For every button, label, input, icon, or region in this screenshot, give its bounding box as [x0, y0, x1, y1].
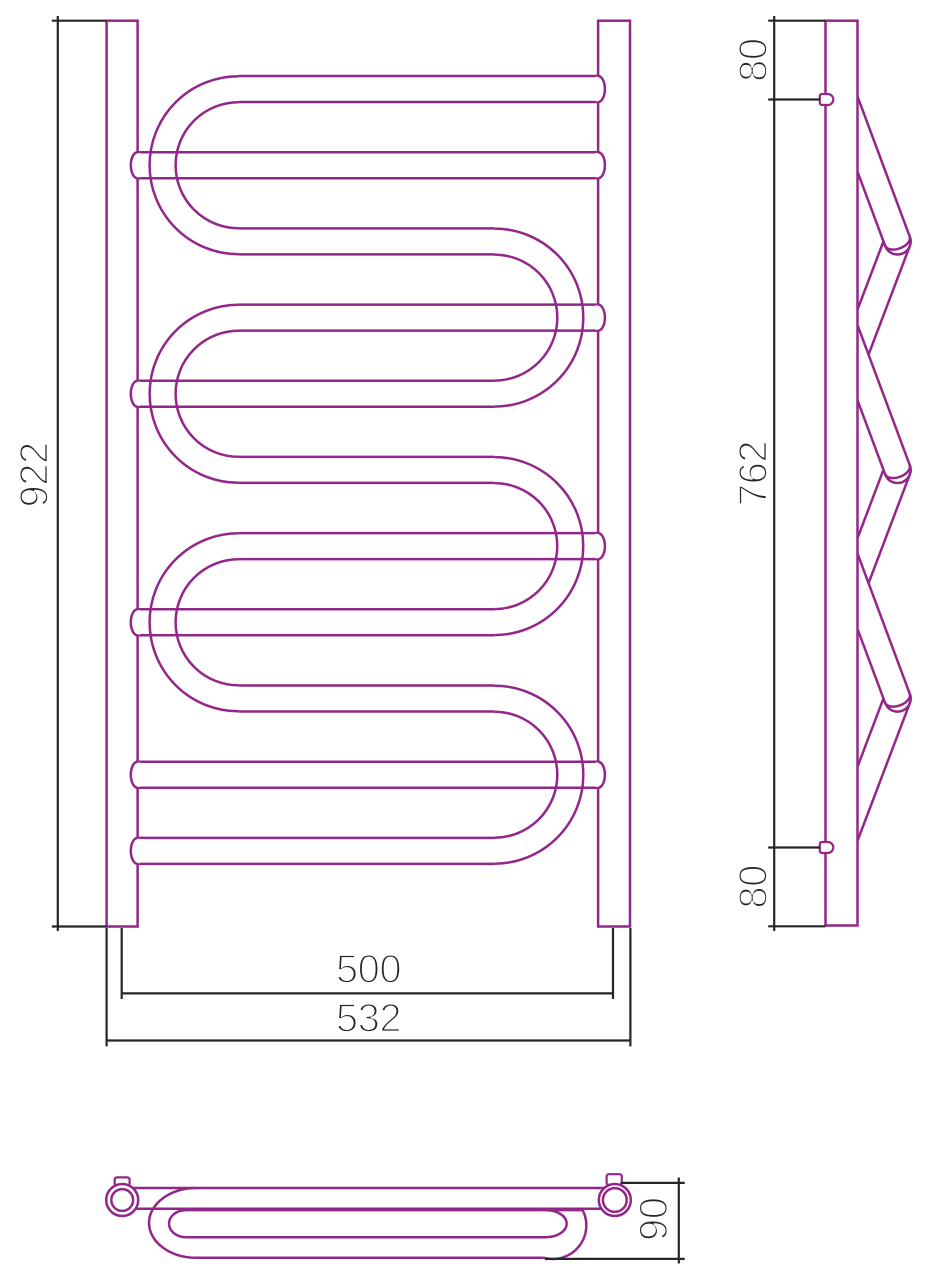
svg-text:922: 922	[13, 442, 57, 507]
svg-text:90: 90	[632, 1197, 676, 1241]
svg-text:762: 762	[732, 441, 776, 506]
svg-text:80: 80	[732, 38, 776, 82]
svg-text:532: 532	[336, 997, 401, 1041]
svg-text:80: 80	[732, 865, 776, 909]
svg-text:500: 500	[336, 948, 401, 992]
